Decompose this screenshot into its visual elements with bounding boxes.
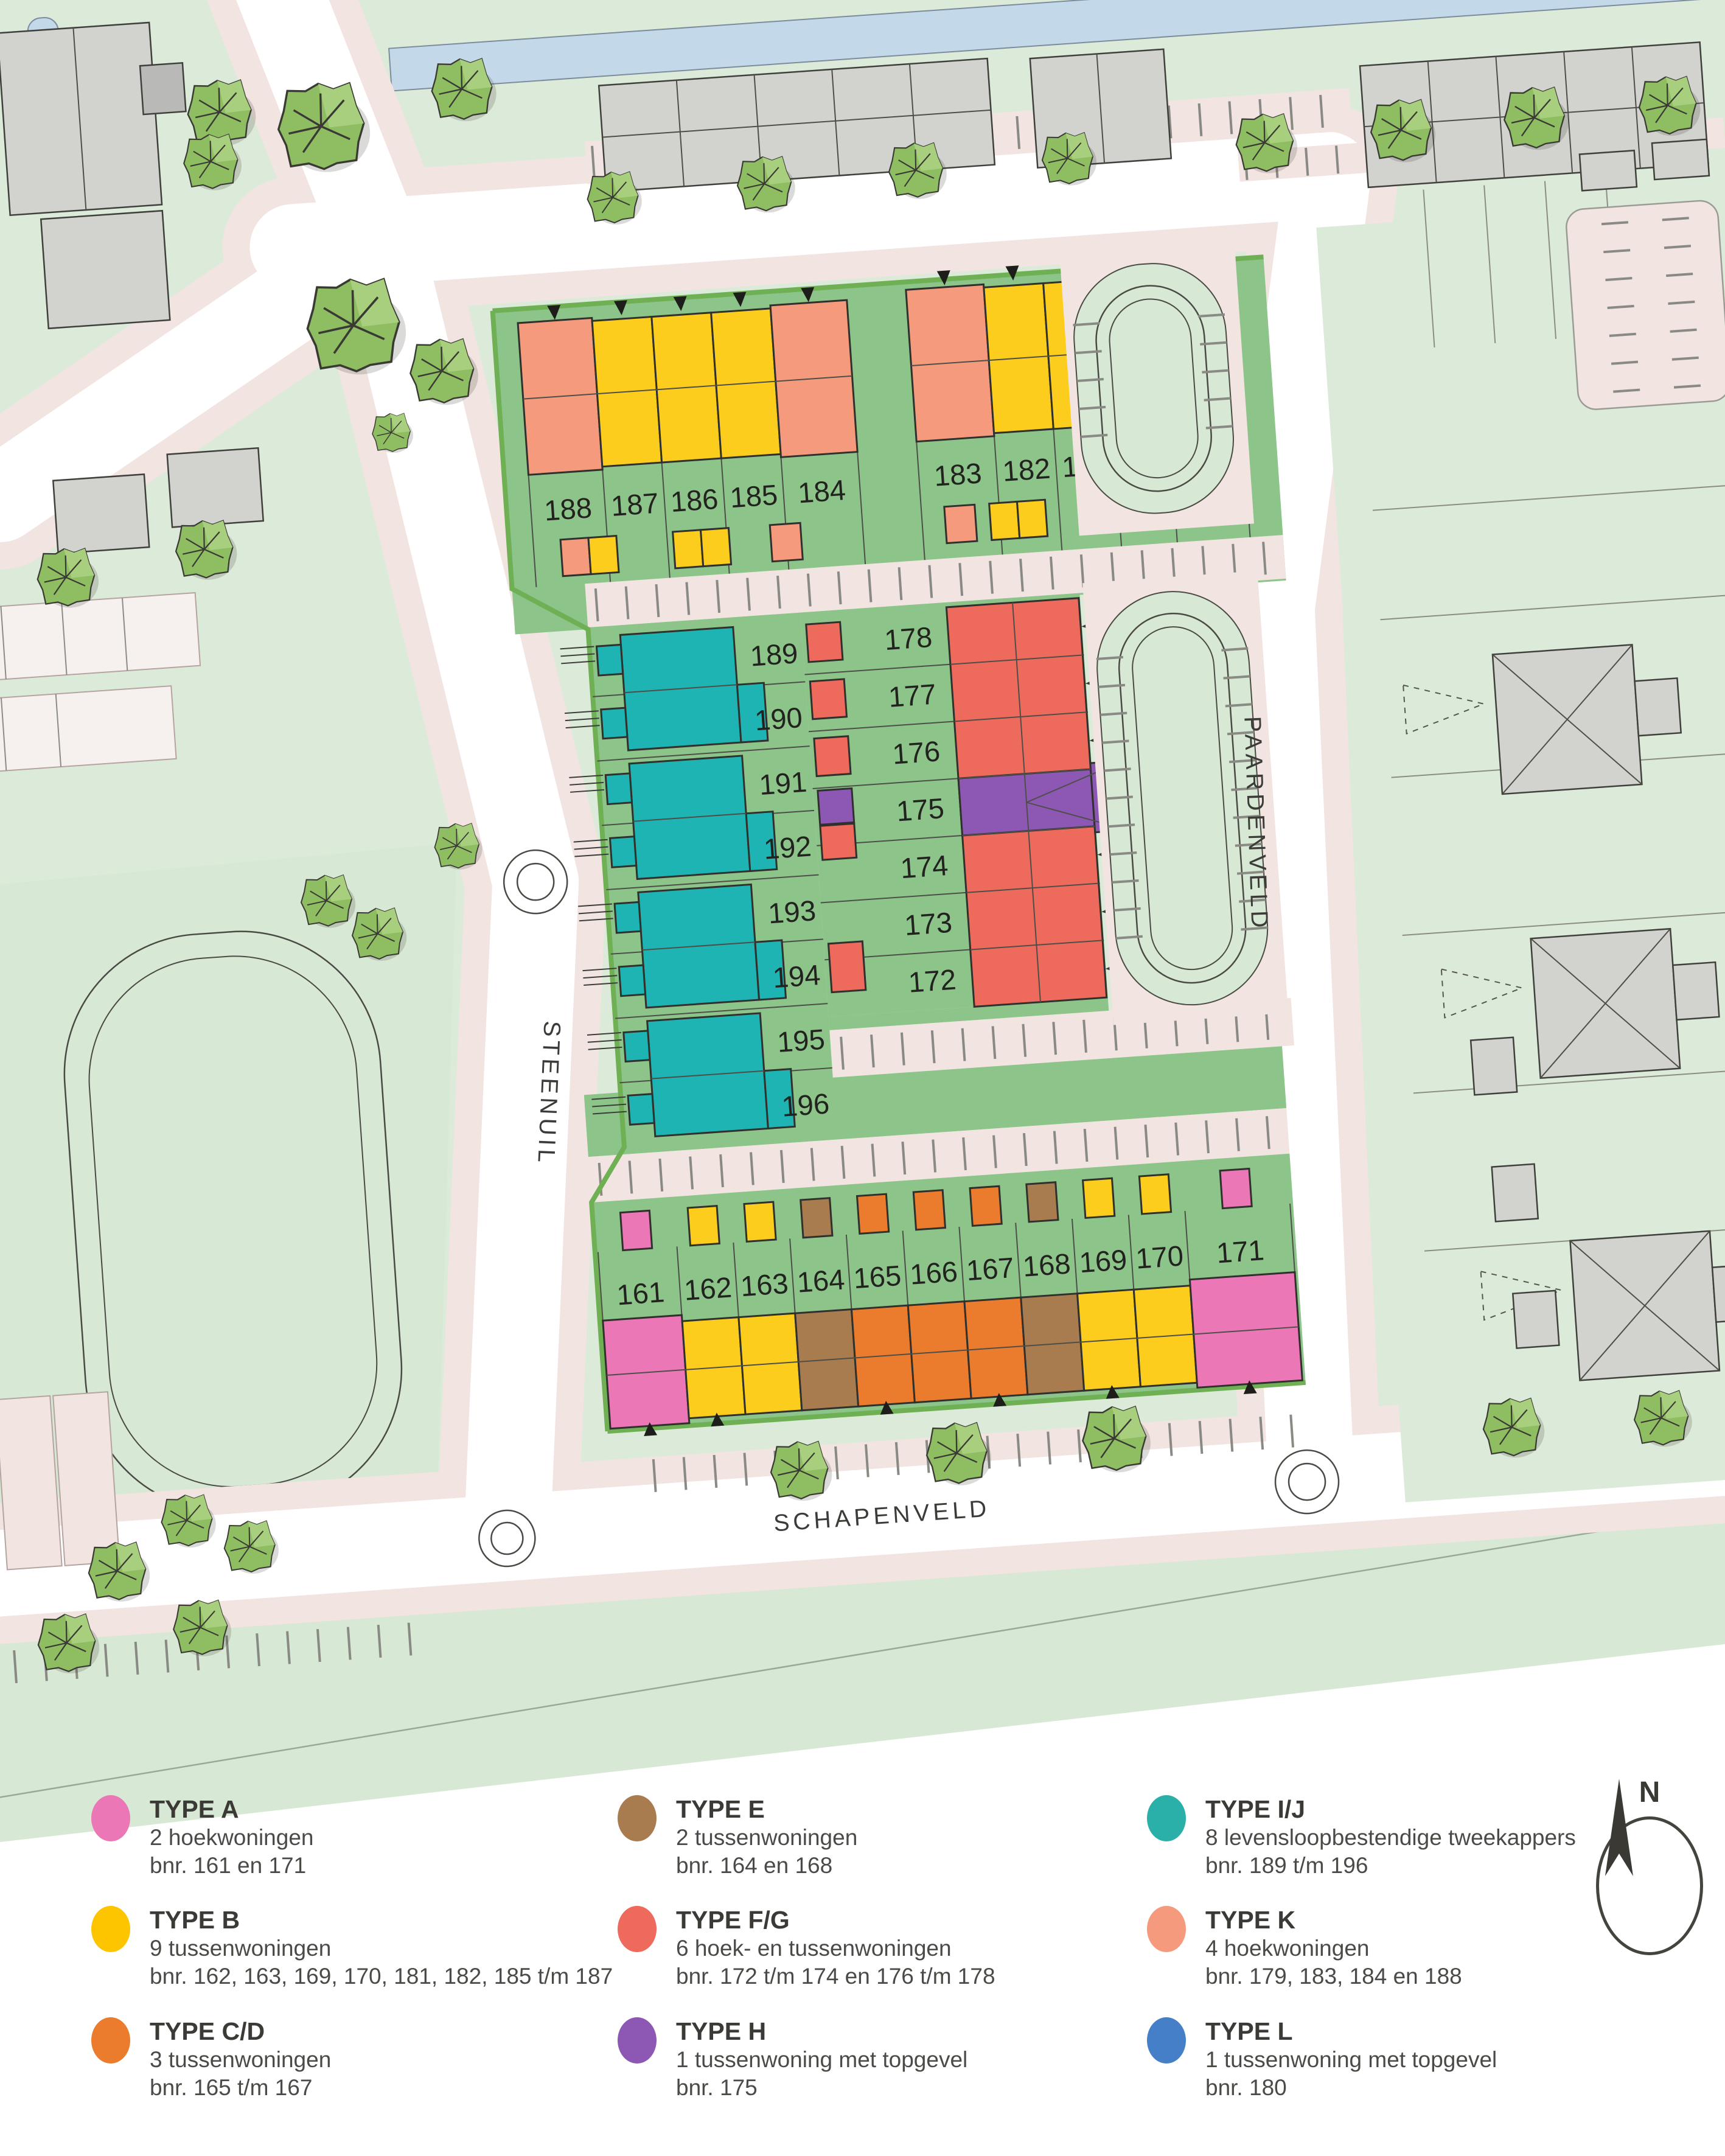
plot-number: 189 bbox=[749, 637, 799, 672]
plot-number: 172 bbox=[907, 963, 957, 998]
plot-number: 185 bbox=[729, 478, 779, 514]
plot-number: 169 bbox=[1078, 1243, 1128, 1279]
plot-number: 165 bbox=[852, 1259, 902, 1294]
plot-number: 173 bbox=[904, 906, 953, 941]
plot-number: 177 bbox=[887, 678, 937, 713]
plot-number: 186 bbox=[669, 483, 719, 518]
legend-entry-type-fg: TYPE F/G 6 hoek- en tussenwoningenbnr. 1… bbox=[618, 1906, 995, 1990]
plot-number: 183 bbox=[933, 456, 983, 492]
plot-number: 194 bbox=[772, 958, 821, 994]
plot-number: 166 bbox=[909, 1255, 959, 1290]
legend-entry-type-b: TYPE B 9 tussenwoningenbnr. 162, 163, 16… bbox=[91, 1906, 613, 1990]
plot-number: 184 bbox=[797, 473, 847, 509]
legend-entry-type-k: TYPE K 4 hoekwoningenbnr. 179, 183, 184 … bbox=[1147, 1906, 1462, 1990]
legend-entry-type-h: TYPE H 1 tussenwoning met topgevelbnr. 1… bbox=[618, 2017, 967, 2102]
legend-color-dot bbox=[618, 1795, 657, 1841]
legend-title: TYPE A bbox=[150, 1795, 314, 1824]
plot-number: 171 bbox=[1215, 1233, 1265, 1269]
plot-number: 195 bbox=[776, 1023, 826, 1058]
legend-entry-type-a: TYPE A 2 hoekwoningenbnr. 161 en 171 bbox=[91, 1795, 314, 1880]
legend-color-dot bbox=[1147, 1795, 1186, 1841]
development: 188 187 186 185 184 183 182 181 180 179 bbox=[492, 241, 1343, 1441]
plot-number: 170 bbox=[1135, 1239, 1185, 1274]
legend-color-dot bbox=[91, 1795, 130, 1841]
legend-color-dot bbox=[618, 1906, 657, 1952]
legend-title: TYPE E bbox=[676, 1795, 857, 1824]
legend-color-dot bbox=[1147, 1906, 1186, 1952]
plot-number: 161 bbox=[616, 1275, 666, 1311]
legend-title: TYPE I/J bbox=[1205, 1795, 1576, 1824]
parking-court-north bbox=[1059, 243, 1254, 536]
legend-color-dot bbox=[91, 2017, 130, 2064]
plot-number: 163 bbox=[739, 1267, 789, 1302]
plot-number: 176 bbox=[891, 734, 941, 770]
plot-number: 192 bbox=[762, 829, 812, 865]
plot-number: 196 bbox=[781, 1087, 831, 1122]
legend-entry-type-e: TYPE E 2 tussenwoningenbnr. 164 en 168 bbox=[618, 1795, 857, 1880]
legend-title: TYPE B bbox=[150, 1906, 613, 1934]
plot-number: 188 bbox=[543, 491, 593, 526]
legend-entry-type-cd: TYPE C/D 3 tussenwoningenbnr. 165 t/m 16… bbox=[91, 2017, 331, 2102]
plot-number: 167 bbox=[965, 1251, 1015, 1286]
plot-number: 168 bbox=[1022, 1247, 1072, 1282]
plot-number: 174 bbox=[899, 849, 949, 884]
compass-icon bbox=[1596, 1816, 1703, 1955]
legend-title: TYPE K bbox=[1205, 1906, 1462, 1934]
plot-number: 187 bbox=[610, 487, 660, 522]
plot-number: 190 bbox=[753, 701, 803, 736]
legend-title: TYPE H bbox=[676, 2017, 967, 2046]
plot-number: 175 bbox=[895, 792, 945, 827]
legend-title: TYPE F/G bbox=[676, 1906, 995, 1934]
legend-color-dot bbox=[1147, 2017, 1186, 2064]
legend-entry-type-l: TYPE L 1 tussenwoning met topgevelbnr. 1… bbox=[1147, 2017, 1497, 2102]
plot-number: 162 bbox=[683, 1271, 733, 1306]
legend-title: TYPE L bbox=[1205, 2017, 1497, 2046]
map-content: 188 187 186 185 184 183 182 181 180 179 bbox=[0, 0, 1725, 1849]
plot-number: 178 bbox=[883, 621, 933, 656]
legend-entry-type-ij: TYPE I/J 8 levensloopbestendige tweekapp… bbox=[1147, 1795, 1576, 1880]
north-indicator: N bbox=[1580, 1776, 1720, 1955]
legend-color-dot bbox=[91, 1906, 130, 1952]
plot-number: 164 bbox=[796, 1263, 846, 1298]
plot-number: 191 bbox=[758, 766, 808, 801]
plot-number: 182 bbox=[1002, 452, 1051, 487]
plot-number: 193 bbox=[767, 894, 817, 929]
site-plan-page: 188 187 186 185 184 183 182 181 180 179 bbox=[0, 0, 1725, 2156]
legend-color-dot bbox=[618, 2017, 657, 2064]
legend-title: TYPE C/D bbox=[150, 2017, 331, 2046]
